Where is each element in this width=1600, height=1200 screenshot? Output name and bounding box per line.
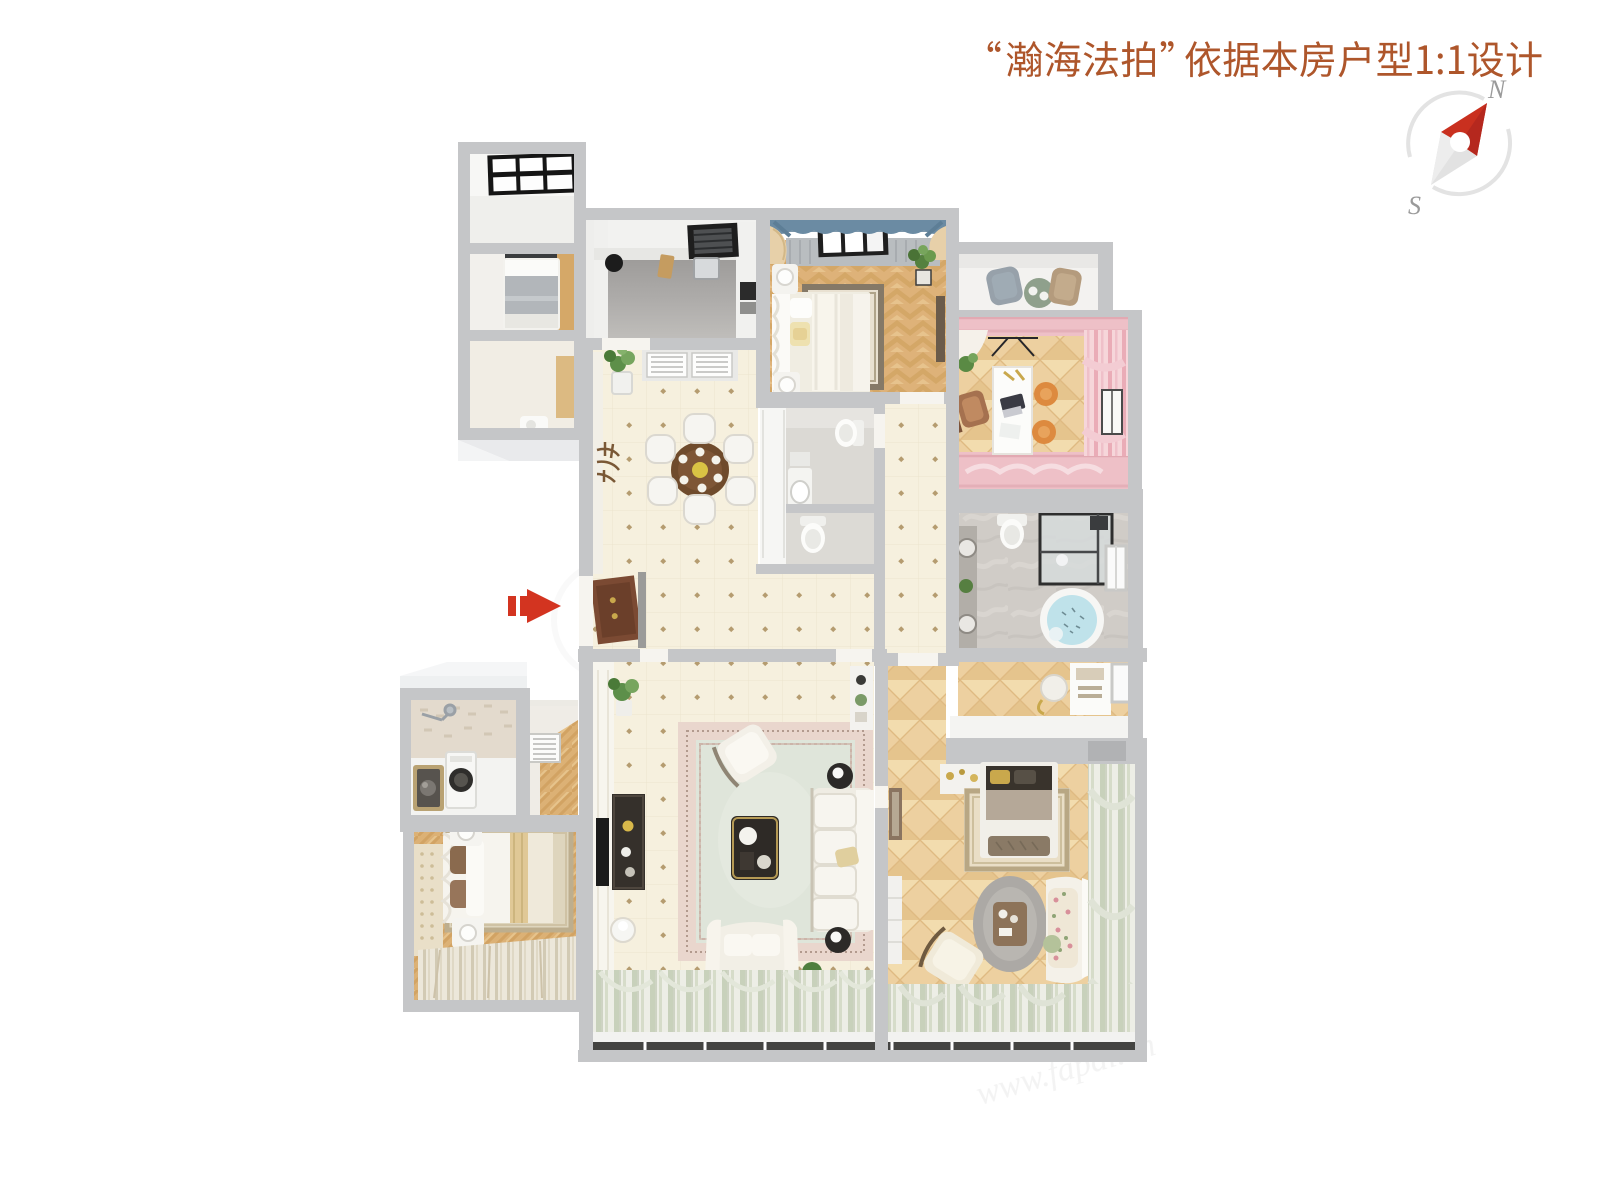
svg-text:S: S: [1408, 191, 1421, 220]
svg-text:N: N: [1487, 75, 1507, 104]
